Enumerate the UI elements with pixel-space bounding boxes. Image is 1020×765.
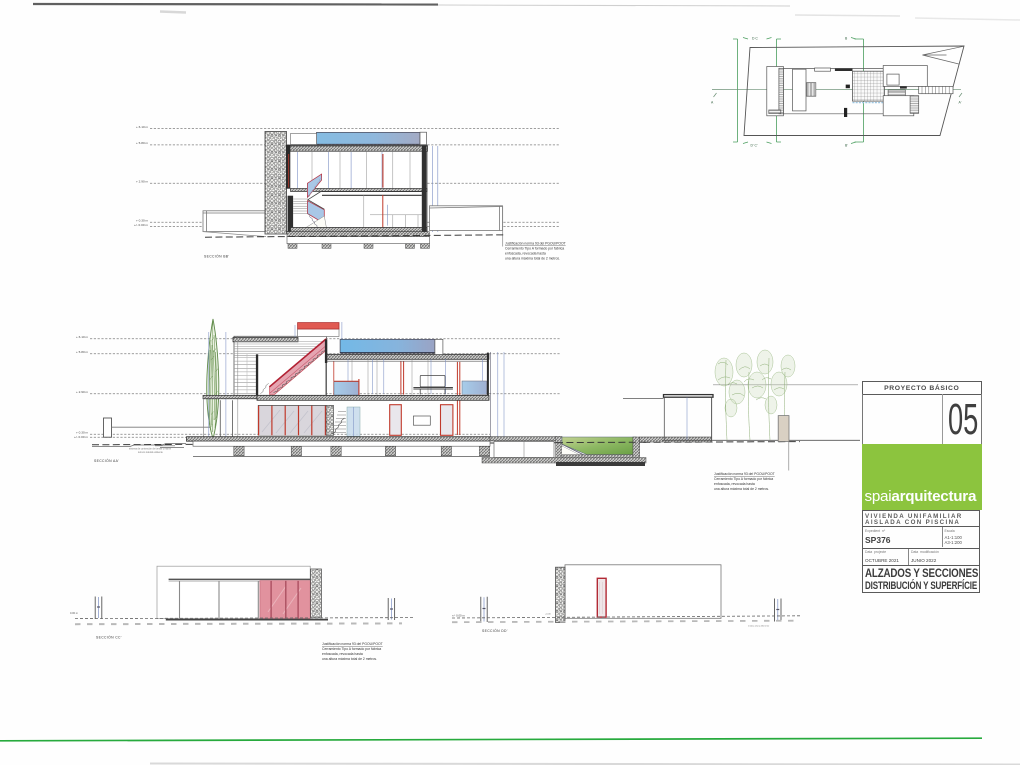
svg-text:A': A' (959, 101, 962, 105)
svg-text:Justificación norma 93 del PGO: Justificación norma 93 del PGOU/POOT (505, 241, 566, 245)
svg-text:Cerramiento Tipo A formado po: Cerramiento Tipo A formado por fábrica (714, 477, 773, 481)
svg-text:SECCIÓN CC': SECCIÓN CC' (96, 635, 122, 640)
svg-text:B': B' (845, 144, 848, 148)
svg-text:una altura máxima total de 2 m: una altura máxima total de 2 metros. (322, 657, 377, 661)
svg-text:SECCIÓN DD': SECCIÓN DD' (482, 628, 508, 633)
svg-text:D C: D C (752, 37, 758, 41)
svg-text:enfoscada, revocada hasta: enfoscada, revocada hasta (322, 652, 363, 656)
svg-text:0.00 m: 0.00 m (70, 611, 78, 615)
svg-text:una altura máxima total de 2 m: una altura máxima total de 2 metros. (714, 487, 769, 491)
svg-text:D' C': D' C' (751, 144, 758, 148)
svg-text:+/- 0.00 m: +/- 0.00 m (74, 435, 88, 439)
svg-text:Cerramiento Tipo A formado po: Cerramiento Tipo A formado por fábrica (322, 647, 381, 651)
svg-text:+ 6.10 m: + 6.10 m (136, 125, 149, 129)
svg-text:sistema de contención de tierr: sistema de contención de tierras y muros (129, 448, 172, 451)
svg-text:enfoscada, revocada hasta: enfoscada, revocada hasta (714, 482, 755, 486)
svg-text:+ 5.80 m: + 5.80 m (76, 350, 89, 354)
svg-text:Cerramiento Tipo A formado po: Cerramiento Tipo A formado por fábrica (505, 246, 564, 250)
svg-text:SECCIÓN BB': SECCIÓN BB' (204, 254, 229, 259)
svg-text:+ 2.90 m: + 2.90 m (76, 390, 89, 394)
svg-text:Justificación norma 93 del PGO: Justificación norma 93 del PGOU/POOT (714, 472, 775, 476)
svg-text:+ 0.30 m: + 0.30 m (136, 218, 149, 222)
svg-text:+ 6.10 m: + 6.10 m (76, 335, 89, 339)
svg-text:una altura máxima total de 2 m: una altura máxima total de 2 metros. (505, 256, 560, 260)
svg-text:+ 5.80 m: + 5.80 m (136, 141, 149, 145)
svg-text:+ 2.90 m: + 2.90 m (136, 180, 149, 184)
svg-text:SECCIÓN AA': SECCIÓN AA' (94, 458, 119, 463)
svg-text:terreno natural existente: terreno natural existente (138, 451, 163, 454)
svg-text:+/- 0.00 m: +/- 0.00 m (134, 223, 148, 227)
svg-text:+/- 0.00 m: +/- 0.00 m (452, 614, 465, 618)
svg-text:media altura diferente: media altura diferente (748, 625, 770, 628)
svg-text:Justificación norma 93 del PGO: Justificación norma 93 del PGOU/POOT (322, 642, 383, 646)
svg-text:enfoscada, revocada hasta: enfoscada, revocada hasta (505, 251, 546, 255)
svg-text:+0.00: +0.00 (545, 614, 551, 616)
